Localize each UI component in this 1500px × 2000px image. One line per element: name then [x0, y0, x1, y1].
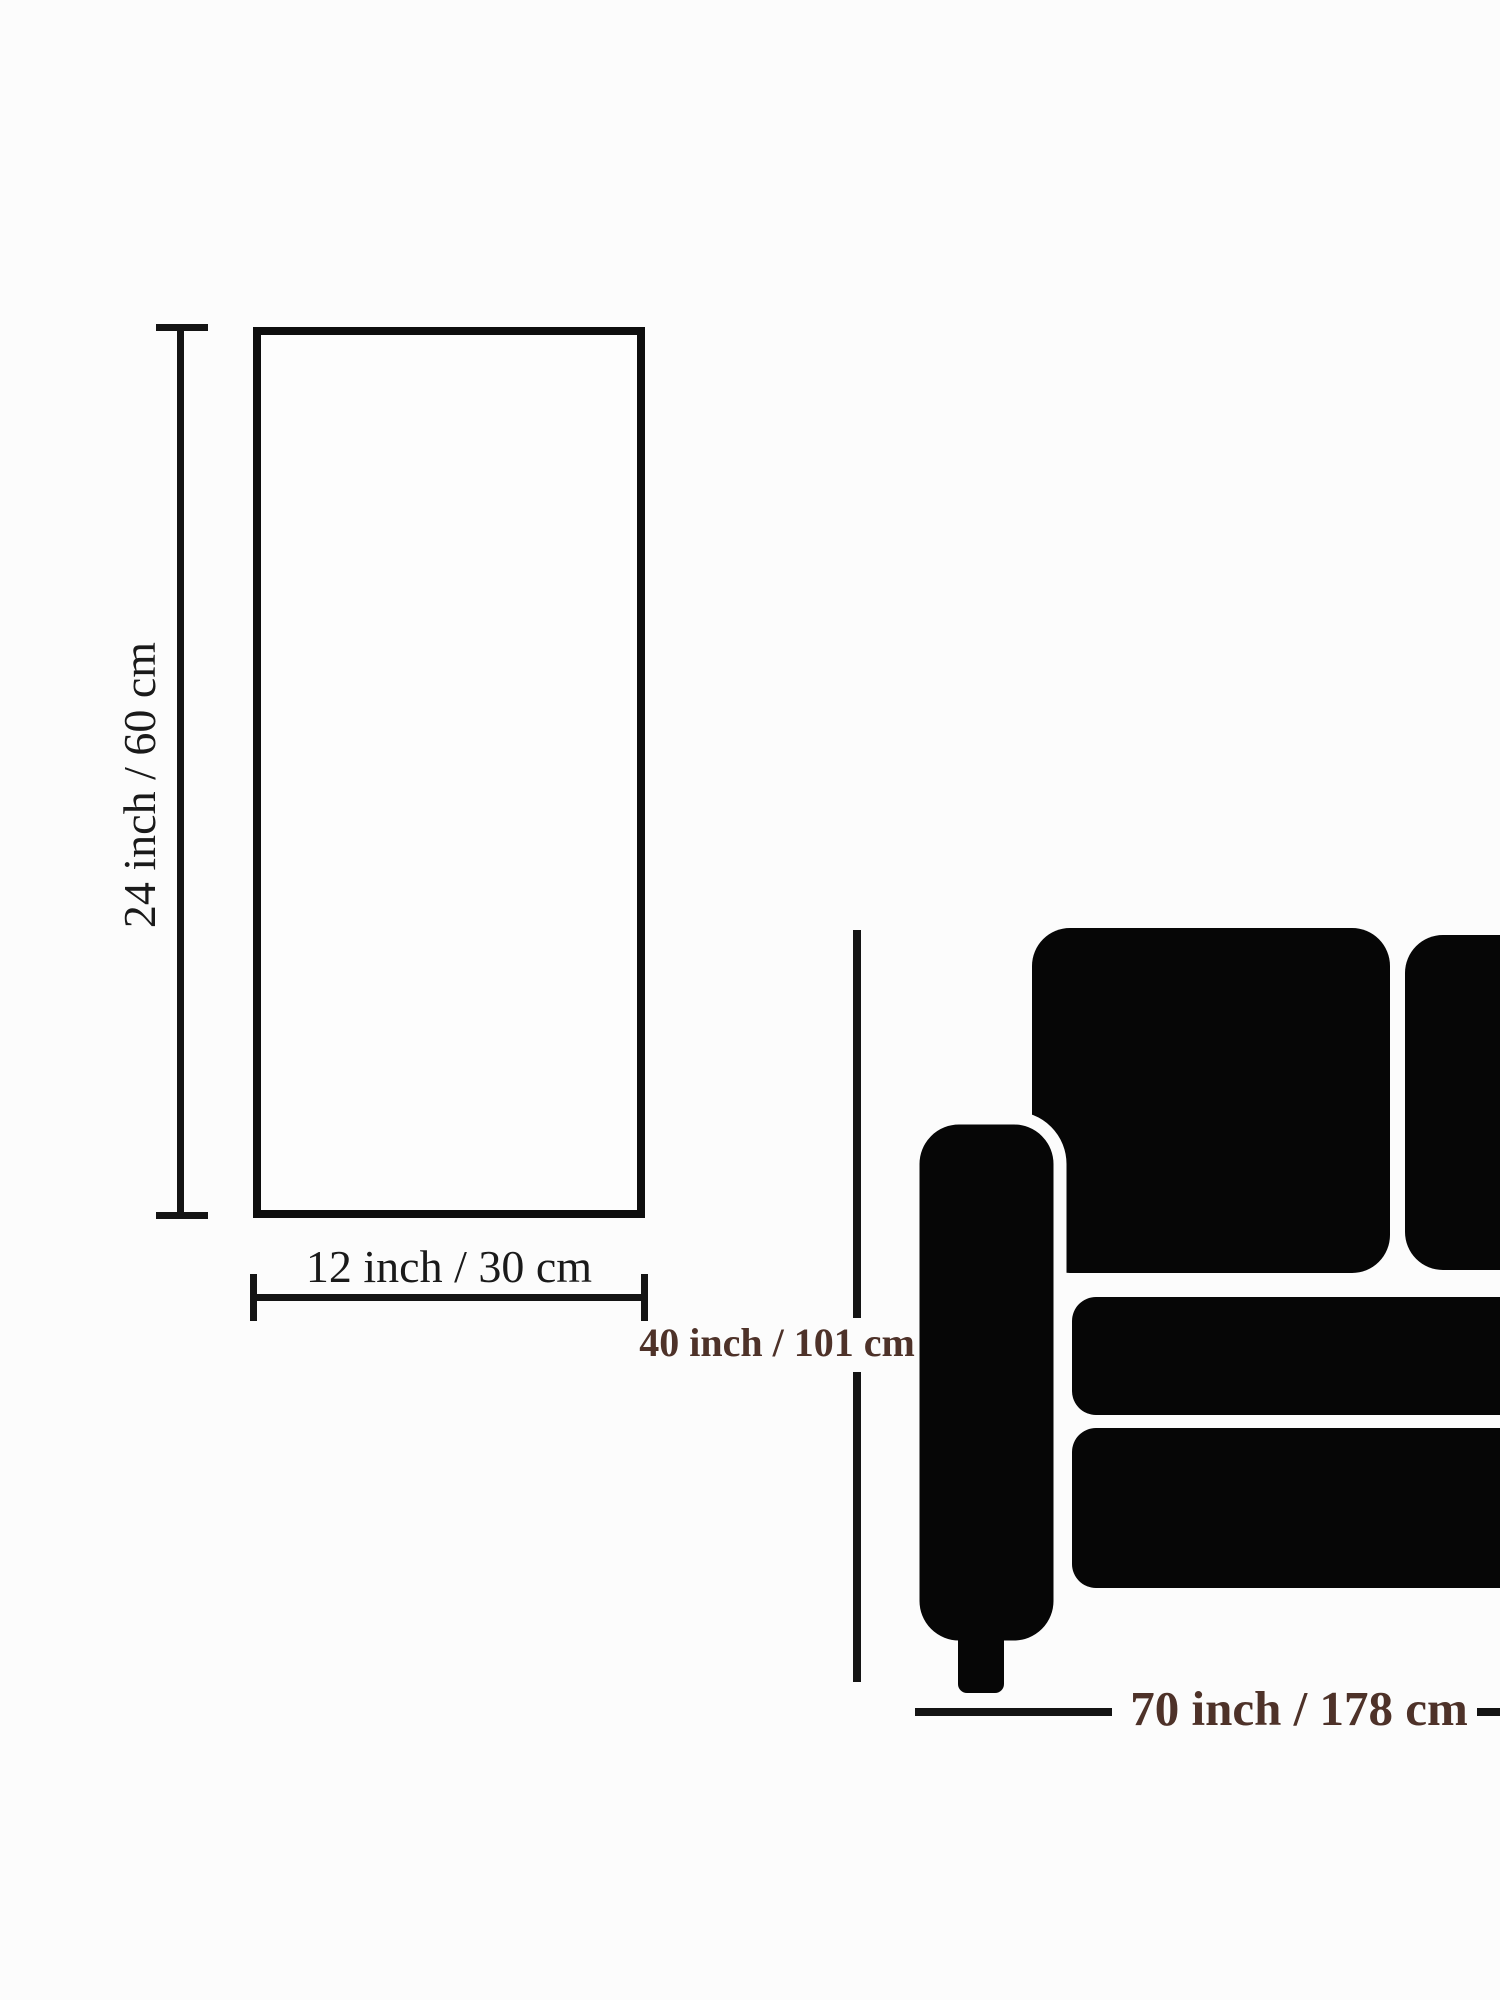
sofa-height-dimension-line-lower [853, 1372, 861, 1682]
sofa-height-label: 40 inch / 101 cm [477, 1318, 1077, 1368]
sofa-armrest [913, 1118, 1060, 1647]
sofa-backrest-right-cushion [1405, 935, 1500, 1270]
sofa-seat-cushion [1072, 1297, 1500, 1415]
sofa-backrest-left-cushion [1032, 928, 1390, 1273]
sofa-base [1072, 1428, 1500, 1588]
sofa-leg [958, 1600, 1004, 1693]
sofa-height-dimension-line-upper [853, 930, 861, 1318]
product-dimensions-diagram: 24 inch / 60 cm 12 inch / 30 cm 40 inch … [0, 0, 1500, 2000]
sofa-width-label: 70 inch / 178 cm [999, 1682, 1500, 1736]
